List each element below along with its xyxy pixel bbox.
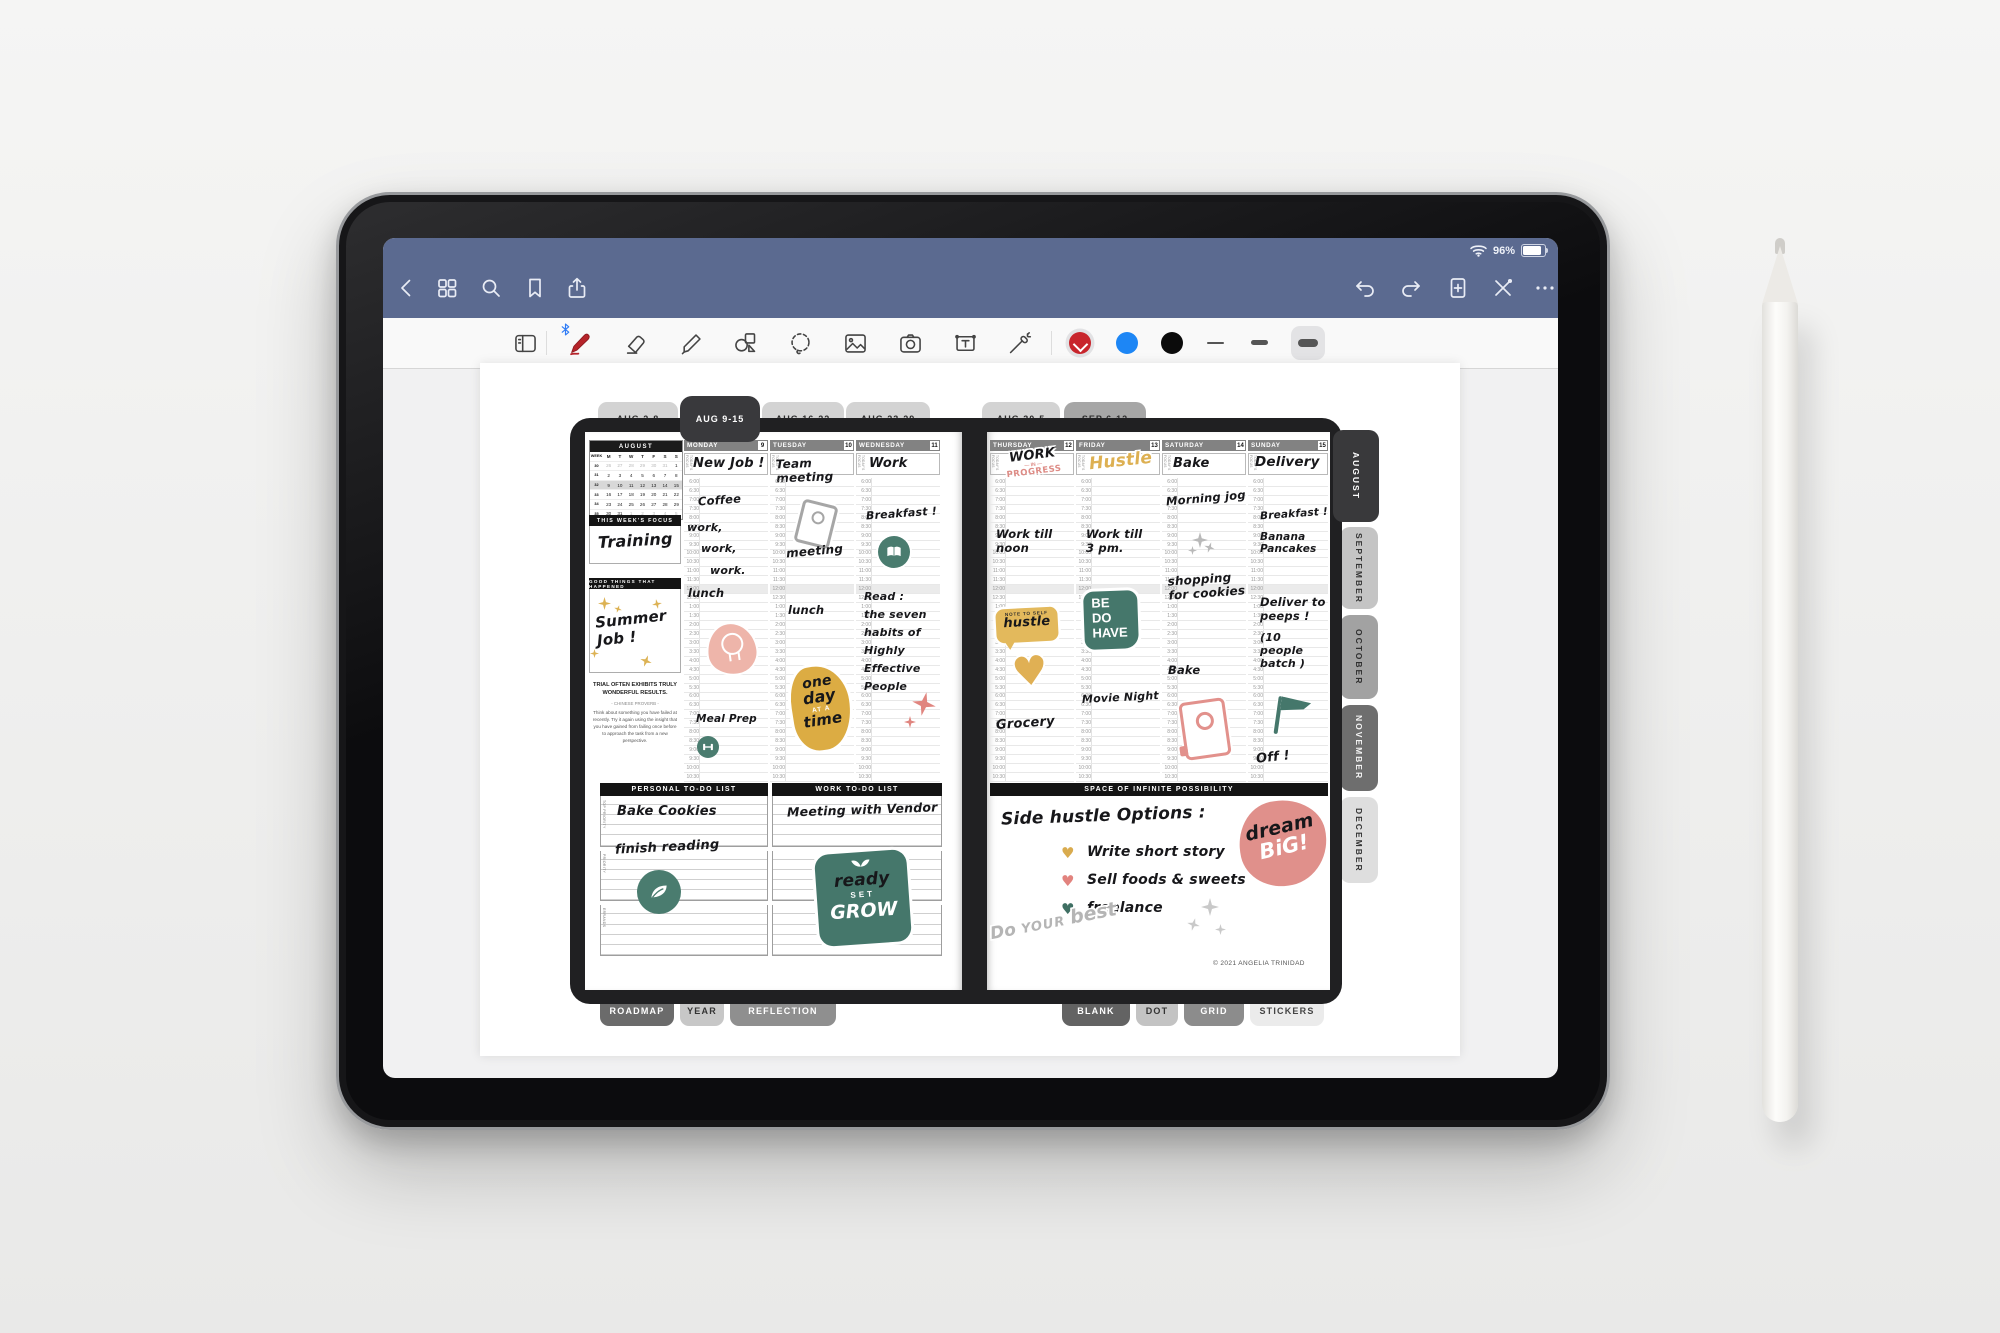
weekly-focus-handwriting: Training [598,530,674,553]
weekly-focus-banner: THIS WEEK'S FOCUS [589,515,681,526]
lightbulb-sticker [705,621,759,677]
personal-todo-banner: PERSONAL TO-DO LIST [600,783,768,796]
handwriting-entry: Movie Night [1082,690,1159,707]
calendar-day: 1 [671,463,682,468]
calendar-day: 4 [626,473,637,478]
day-entries-overlay: Work till 3 pm. BE DO HAVE Movie Night [1076,440,1160,780]
handwriting-entry: Read : the seven habits of Highly Effect… [864,588,927,695]
todo-section-label: PRIORITY [602,854,606,873]
todo-section-label: TOP PRIORITY [602,800,606,829]
bottom-tab-label: DOT [1146,1006,1169,1016]
bottom-tab-label: ROADMAP [610,1006,665,1016]
handwriting-entry: Breakfast ! [866,506,938,524]
mini-calendar-title: AUGUST [590,441,682,452]
calendar-day: 11 [626,483,637,488]
battery-percent: 96% [1493,245,1515,257]
handwriting-entry: Bake [1168,664,1200,678]
calendar-day: 14 [659,483,670,488]
calendar-week-row: 3316171819202122 [590,490,682,500]
quote-body: Think about something you have failed at… [589,709,681,745]
handwriting-entry: Grocery [996,714,1056,733]
calendar-week-row: 329101112131415 [590,481,682,491]
calendar-day: 26 [603,463,614,468]
sticker-text: best [1068,898,1118,929]
undo-button[interactable] [1345,268,1385,308]
weekly-focus-box: Training [589,526,681,564]
week-tab-aug-9-15-selected[interactable]: AUG 9-15 [680,396,760,442]
handwriting-entry: work, [687,522,723,535]
bottom-tab-label: YEAR [687,1006,717,1016]
sticker-text: YOUR [1020,914,1067,937]
calendar-day: 7 [659,473,670,478]
handwriting-entry: Deliver to peeps ! [1260,596,1326,623]
calendar-day: 12 [637,483,648,488]
heart-character-sticker: ♥ [1010,650,1050,694]
handwriting-entry: Sell foods & sweets [1087,872,1246,889]
day-column-wednesday: WEDNESDAY 11 TODAY'S FOCUS Work 6:006:30… [856,440,940,780]
status-bar: 96% [1470,244,1546,257]
ready-set-grow-sticker: ready SET GROW [814,849,912,947]
handwriting-entry: Work till 3 pm. [1086,528,1142,555]
tablet-screen: 96% [383,238,1558,1078]
pencil-tip [1762,246,1798,304]
sparkle-sticker [590,649,599,658]
calendar-day: 8 [671,473,682,478]
month-tab-label: SEPTEMBER [1354,533,1364,604]
calendar-week-row: 302627282930311 [590,462,682,472]
day-column-monday: MONDAY 9 TODAY'S FOCUS New Job ! 6:006:3… [684,440,768,780]
note-to-self-sticker: NOTE TO SELF hustle [995,606,1059,643]
month-tab-december[interactable]: DECEMBER [1340,797,1378,883]
camera-tool[interactable] [892,325,928,361]
sparkle-sticker [904,716,916,728]
work-todo-banner: WORK TO-DO LIST [772,783,942,796]
eraser-icon [622,330,649,357]
sparkle-sticker [1186,917,1202,933]
pencil-cross-icon [1491,276,1515,300]
calendar-day: 29 [637,463,648,468]
calendar-day: 16 [603,492,614,497]
handwriting-entry: work, [701,543,737,556]
image-tool[interactable] [837,325,873,361]
calendar-day: 29 [671,502,682,507]
page-panel-tool[interactable] [507,325,543,361]
calendar-day: 30 [648,463,659,468]
handwriting-entry: Side hustle Options : [1001,802,1206,829]
add-page-button[interactable] [1438,268,1478,308]
text-tool[interactable] [947,325,983,361]
day-entries-overlay: Breakfast ! Read : the seven habits of H… [856,440,940,780]
chevron-down-icon [1073,337,1089,353]
highlighter-tool[interactable] [673,325,709,361]
week-tab-label: AUG 9-15 [696,414,745,424]
toolbar-divider [1051,331,1052,355]
quote-title: TRIAL OFTEN EXHIBITS TRULY WONDERFUL RES… [589,682,681,698]
sparkle-sticker [1188,546,1197,555]
handwriting-entry: meeting [785,542,843,561]
copyright-text: © 2021 ANGELIA TRINIDAD [1213,960,1305,967]
do-your-best-sticker: Do YOUR best [988,898,1120,944]
apple-pencil [1762,238,1798,1122]
calendar-day: 18 [626,492,637,497]
journal-sticker [1178,697,1232,761]
handwriting-entry: lunch [688,587,724,601]
calendar-day: 2 [603,473,614,478]
quote-block: TRIAL OFTEN EXHIBITS TRULY WONDERFUL RES… [589,682,681,762]
back-button[interactable] [387,268,427,308]
bottom-tab-label: BLANK [1077,1006,1115,1016]
sticker-text: HAVE [1092,624,1138,641]
month-tab-november[interactable]: NOVEMBER [1340,705,1378,791]
calendar-day: 5 [637,473,648,478]
stroke-thick-bar [1298,339,1318,347]
dream-big-sticker: dream BiG! [1230,791,1335,895]
day-entries-overlay: Morning jog shopping for cookies Bake [1162,440,1246,780]
flag-sticker [1269,693,1314,740]
tools-toolbar [383,318,1558,369]
sticker-text: Do [988,920,1017,945]
day-column-tuesday: TUESDAY 10 TODAY'S FOCUS Team meeting 6:… [770,440,854,780]
calendar-day: 9 [603,483,614,488]
wifi-icon [1470,244,1487,257]
color-red-selected[interactable] [1069,332,1091,354]
bookmark-icon [523,276,547,300]
page-panel-icon [512,330,539,357]
add-page-icon [1446,276,1470,300]
leaf-sticker [637,870,681,914]
calendar-day: 15 [671,483,682,488]
calendar-week-row: 312345678 [590,471,682,481]
handwriting-entry: Banana Pancakes [1260,531,1316,556]
day-column-saturday: SATURDAY 14 TODAY'S FOCUS Bake 6:006:307… [1162,440,1246,780]
toolbar-divider [546,331,547,355]
calendar-day: 25 [626,502,637,507]
shapes-icon [732,330,759,357]
calendar-day: 26 [637,502,648,507]
laser-tool[interactable] [1000,325,1036,361]
search-button[interactable] [471,268,511,308]
book-sticker [878,536,910,568]
day-entries-overlay: Coffee work, work, work. lunch Meal Prep [684,440,768,780]
readonly-toggle-button[interactable] [1483,268,1523,308]
handwriting-entry: Meal Prep [696,713,757,725]
calendar-day: 27 [648,502,659,507]
sparkle-sticker [598,597,611,610]
handwriting-entry: Bake Cookies [617,804,717,819]
day-column-friday: FRIDAY 13 TODAY'S FOCUS Hustle 6:006:307… [1076,440,1160,780]
shapes-tool[interactable] [727,325,763,361]
color-black[interactable] [1161,332,1183,354]
handwriting-entry: shopping for cookies [1167,569,1246,603]
todo-section-label: ERRANDS [602,908,606,927]
month-tab-label: NOVEMBER [1354,715,1364,780]
calendar-day: 21 [659,492,670,497]
highlighter-icon [678,330,705,357]
sparkle-sticker [638,653,653,668]
personal-todo-list [600,796,768,956]
mini-calendar: AUGUST WEEKMTWTFSS3026272829303113123456… [589,440,683,520]
month-tab-label: DECEMBER [1354,808,1364,873]
month-tab-label: AUGUST [1351,452,1361,500]
share-button[interactable] [557,268,597,308]
handwriting-entry: Coffee [698,493,742,510]
calendar-day: 19 [637,492,648,497]
handwriting-entry: work. [710,565,746,578]
thumbnails-icon [435,276,459,300]
camera-icon [897,330,924,357]
sticker-text: BE [1091,594,1137,611]
handwriting-entry: (10 people batch ) [1260,632,1328,671]
planner-right-page: THURSDAY 12 TODAY'S FOCUS WORK — IN — PR… [987,432,1330,990]
calendar-day: 24 [614,502,625,507]
calendar-day: 17 [614,492,625,497]
ellipsis-icon [1533,276,1557,300]
undo-icon [1353,276,1377,300]
more-button[interactable] [1525,268,1558,308]
day-entries-overlay: Breakfast ! Banana Pancakes Deliver to p… [1248,440,1328,780]
good-things-handwriting: Summer Job ! [594,607,669,650]
day-column-thursday: THURSDAY 12 TODAY'S FOCUS WORK — IN — PR… [990,440,1074,780]
stroke-medium[interactable] [1251,340,1268,345]
handwriting-entry: Morning jog [1166,489,1247,509]
handwriting-entry: Write short story [1087,844,1225,861]
calendar-day: 6 [648,473,659,478]
sparkle-sticker [1203,541,1217,555]
month-tab-october[interactable]: OCTOBER [1340,615,1378,699]
bluetooth-icon [561,323,570,336]
todo-section [600,905,768,956]
calendar-day: 28 [626,463,637,468]
sticker-text: DO [1092,609,1138,626]
be-do-have-sticker: BE DO HAVE [1083,590,1139,650]
planner-left-page: AUGUST WEEKMTWTFSS3026272829303113123456… [585,432,962,990]
calendar-day: 23 [603,502,614,507]
handwriting-entry: Off ! [1255,748,1290,767]
search-icon [479,276,503,300]
scene: 96% [0,0,2000,1333]
day-column-sunday: SUNDAY 15 TODAY'S FOCUS Delivery 6:006:3… [1248,440,1328,780]
sparkle-sticker [1215,924,1226,935]
color-blue[interactable] [1116,332,1138,354]
handwriting-entry: Work till noon [996,528,1052,555]
pen-tool-selected[interactable] [561,325,597,361]
good-things-banner: GOOD THINGS THAT HAPPENED [589,578,681,589]
thumbnails-button[interactable] [427,268,467,308]
heart-bullet: ♥ [1061,874,1074,889]
sparkle-sticker [1201,898,1219,916]
calendar-day: 22 [671,492,682,497]
calendar-week-row: 3423242526272829 [590,500,682,510]
month-tab-label: OCTOBER [1354,629,1364,685]
bottom-tab-label: GRID [1200,1006,1227,1016]
bottom-tab-label: STICKERS [1259,1006,1314,1016]
laser-icon [1005,330,1032,357]
calendar-day: 28 [659,502,670,507]
battery-icon [1521,244,1546,257]
calendar-day: 27 [614,463,625,468]
handwriting-entry: Breakfast ! [1260,506,1329,523]
calendar-day: 13 [648,483,659,488]
calendar-day: 10 [614,483,625,488]
image-icon [842,330,869,357]
redo-icon [1399,276,1423,300]
stroke-thin[interactable] [1207,342,1224,344]
eraser-tool[interactable] [617,325,653,361]
bookmark-button[interactable] [515,268,555,308]
possibility-banner: SPACE OF INFINITE POSSIBILITY [990,783,1328,796]
todo-section [600,851,768,902]
text-icon [952,330,979,357]
calendar-day: 3 [614,473,625,478]
dumbbell-sticker [697,736,719,758]
share-icon [565,276,589,300]
day-entries-overlay: Work till noon NOTE TO SELF hustle ♥ Gro… [990,440,1074,780]
app-navbar: 96% [383,238,1558,318]
month-tab-september[interactable]: SEPTEMBER [1340,527,1378,609]
sparkle-sticker [1192,532,1208,548]
lasso-icon [787,330,814,357]
calendar-day: 20 [648,492,659,497]
bottom-tab-label: REFLECTION [748,1006,818,1016]
stroke-thick-selected[interactable] [1291,326,1325,360]
quote-attribution: - CHINESE PROVERB - [589,701,681,706]
lasso-tool[interactable] [782,325,818,361]
sticker-text: hustle [996,613,1059,632]
calendar-day: 31 [659,463,670,468]
pencil-body [1762,302,1798,1122]
mini-calendar-grid: WEEKMTWTFSS30262728293031131234567832910… [590,452,682,519]
one-day-at-a-time-sticker: one day AT A time [786,662,856,754]
month-tab-august-selected[interactable]: AUGUST [1333,430,1379,522]
day-entries-overlay: meeting lunch one day AT A time [770,440,854,780]
handwriting-entry: lunch [788,604,824,618]
heart-bullet: ♥ [1061,846,1074,861]
redo-button[interactable] [1391,268,1431,308]
back-icon [395,276,419,300]
good-things-box: Summer Job ! [589,589,681,673]
